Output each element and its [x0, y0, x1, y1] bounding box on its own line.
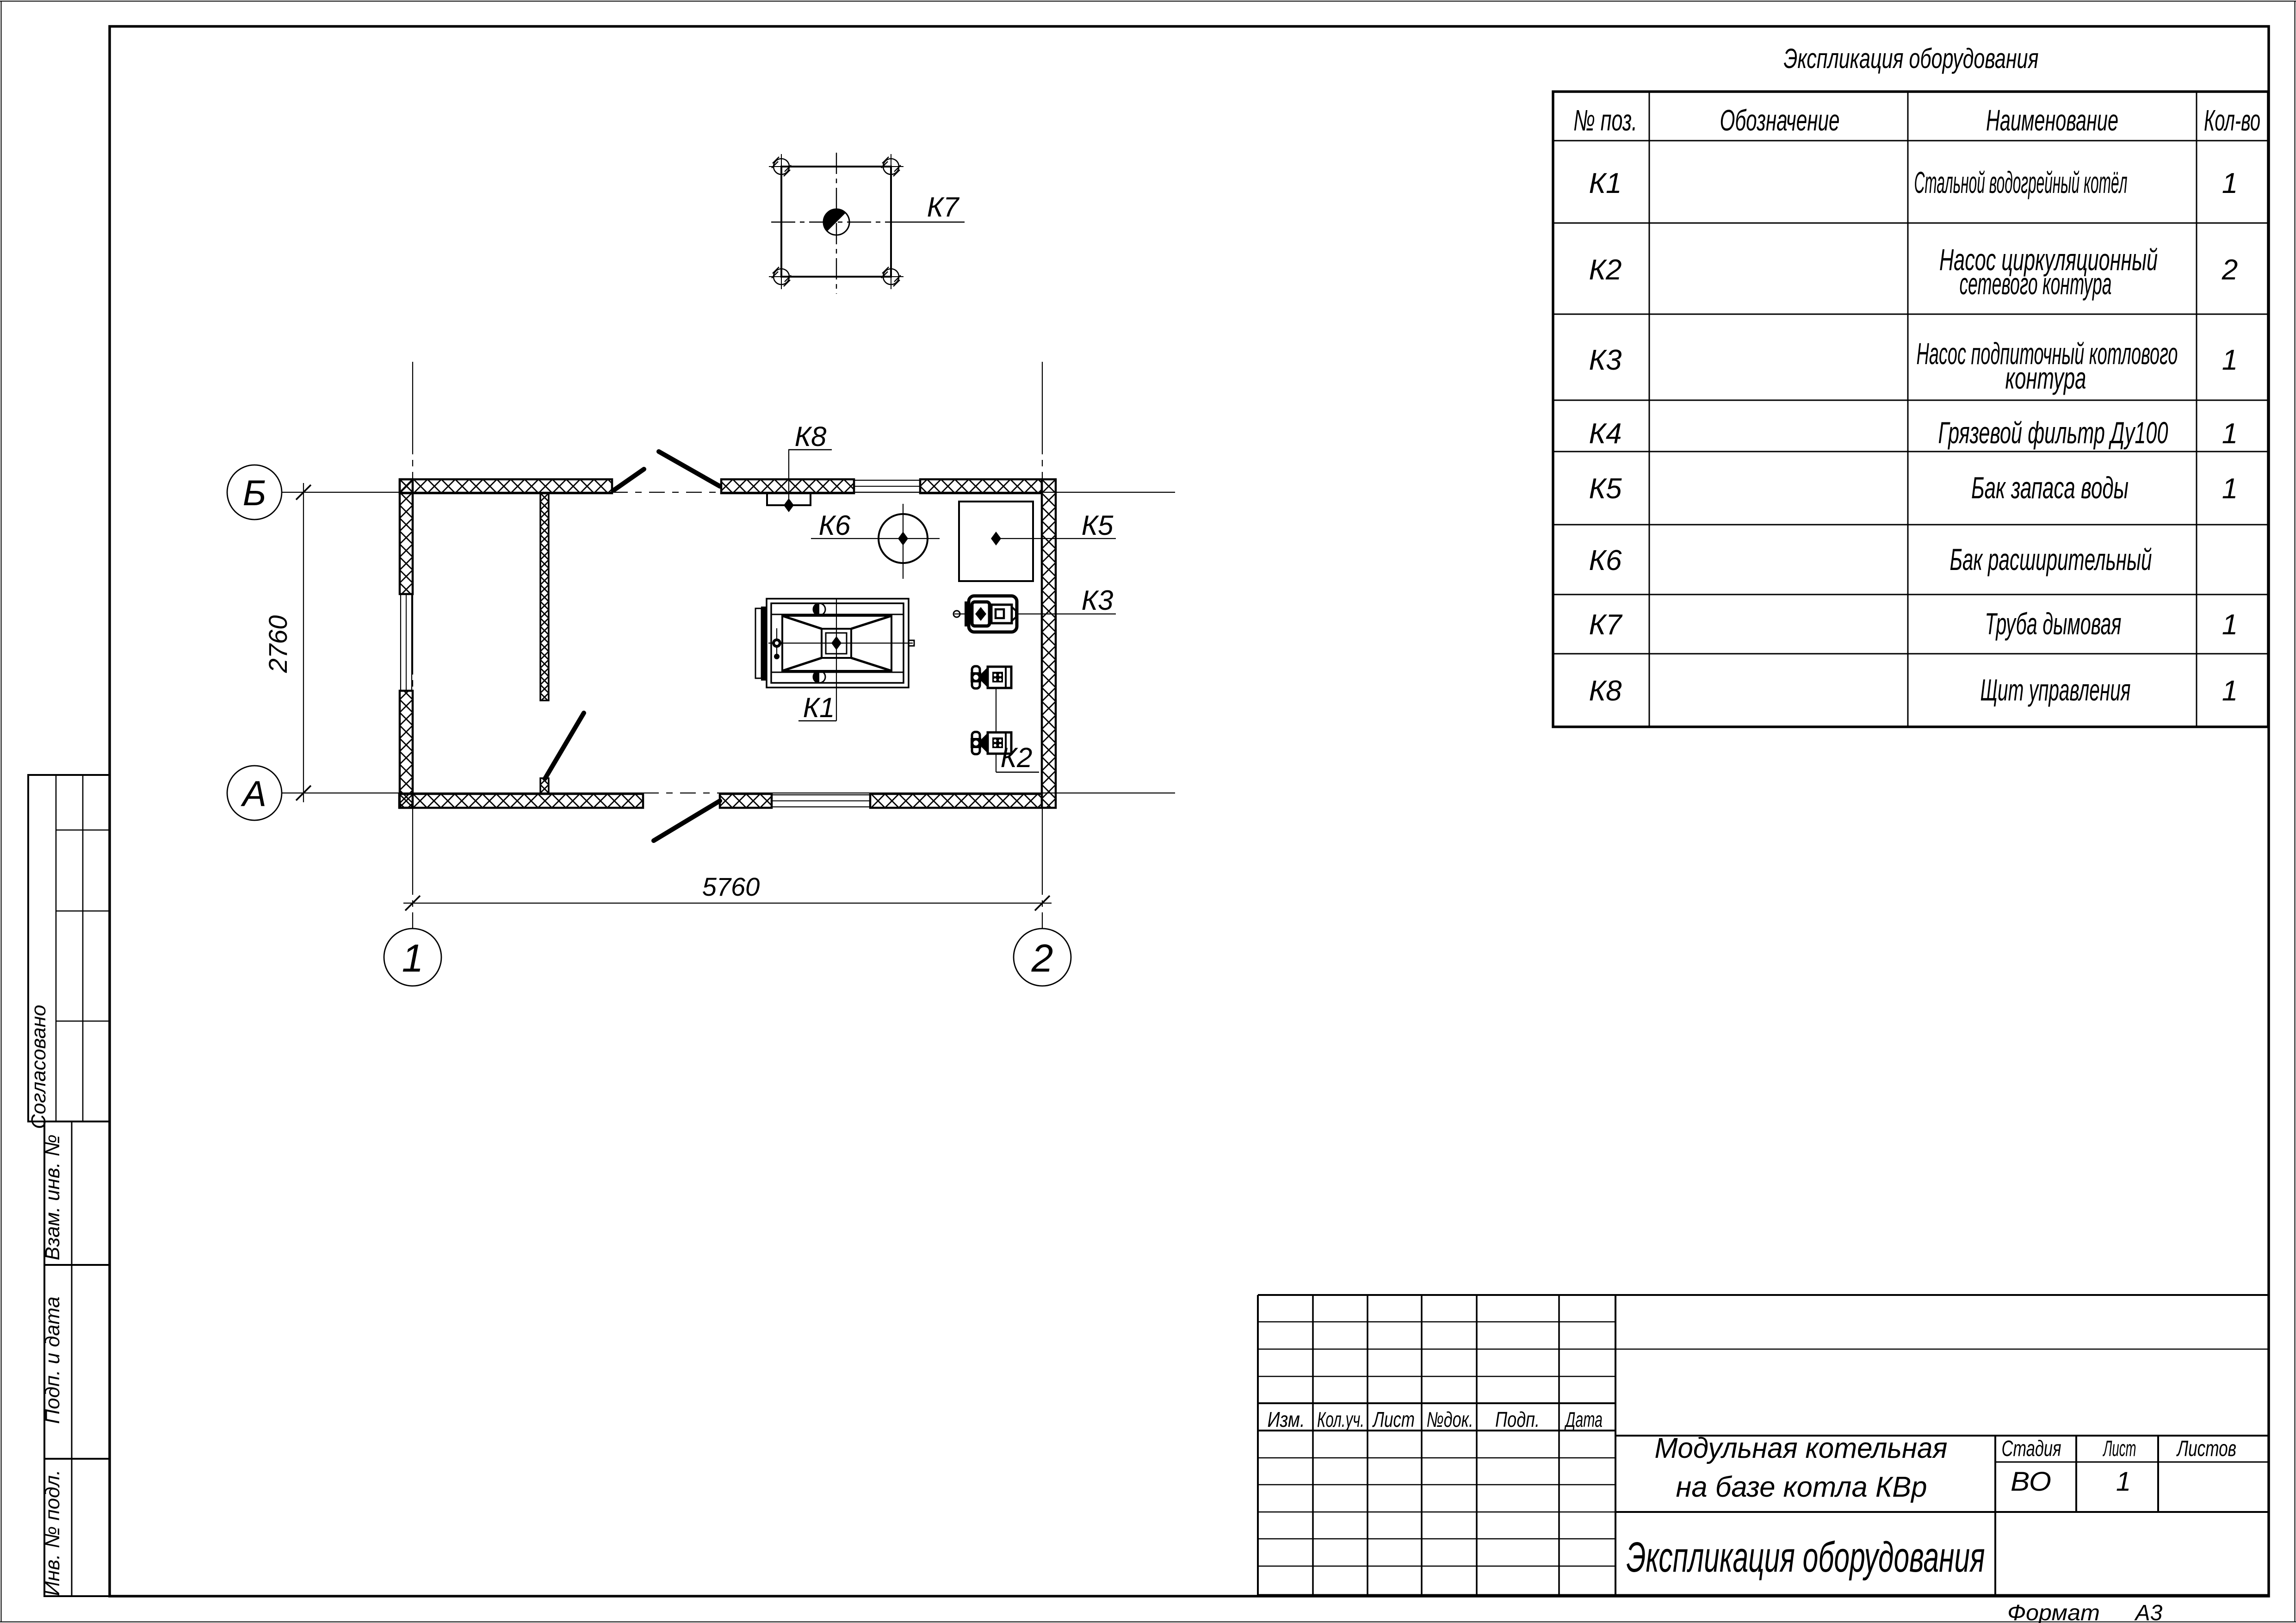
svg-text:Взам. инв. №: Взам. инв. №	[41, 1134, 64, 1260]
svg-text:К2: К2	[1001, 742, 1033, 773]
svg-text:Листов: Листов	[2176, 1437, 2236, 1461]
svg-text:К7: К7	[1589, 609, 1623, 641]
svg-text:1: 1	[402, 936, 424, 980]
svg-text:№док.: №док.	[1427, 1407, 1473, 1431]
svg-text:Экспликация оборудования: Экспликация оборудования	[1627, 1534, 1985, 1581]
svg-text:Изм.: Изм.	[1268, 1407, 1305, 1431]
svg-text:А3: А3	[2134, 1601, 2163, 1623]
svg-text:Экспликация оборудования: Экспликация оборудования	[1784, 43, 2039, 74]
svg-text:1: 1	[2222, 418, 2238, 450]
svg-text:К6: К6	[819, 510, 851, 541]
svg-text:Наименование: Наименование	[1986, 104, 2118, 137]
svg-text:К3: К3	[1589, 344, 1621, 376]
svg-text:К8: К8	[1589, 675, 1622, 707]
svg-text:Подп.: Подп.	[1495, 1407, 1540, 1431]
svg-text:Формат: Формат	[2007, 1601, 2100, 1623]
svg-text:1: 1	[2222, 473, 2238, 505]
svg-text:Бак запаса воды: Бак запаса воды	[1971, 471, 2129, 505]
svg-text:контура: контура	[2005, 361, 2086, 395]
svg-text:Лист: Лист	[2103, 1437, 2136, 1461]
svg-text:2: 2	[2222, 254, 2238, 286]
svg-text:1: 1	[2222, 675, 2238, 707]
svg-text:Щит управления: Щит управления	[1980, 673, 2131, 707]
svg-text:1: 1	[2222, 344, 2238, 376]
svg-text:ВО: ВО	[2011, 1467, 2051, 1497]
svg-text:К8: К8	[795, 421, 827, 452]
svg-text:1: 1	[2116, 1467, 2131, 1497]
svg-text:Дата: Дата	[1564, 1407, 1603, 1431]
svg-text:1: 1	[2222, 167, 2238, 199]
svg-text:Грязевой фильтр Ду100: Грязевой фильтр Ду100	[1938, 415, 2168, 450]
svg-text:Стадия: Стадия	[2002, 1437, 2061, 1461]
svg-text:Б: Б	[243, 472, 266, 513]
svg-text:Кол.уч.: Кол.уч.	[1317, 1407, 1364, 1431]
svg-text:Труба дымовая: Труба дымовая	[1985, 607, 2122, 641]
svg-text:Модульная котельная: Модульная котельная	[1655, 1432, 1948, 1464]
svg-text:А: А	[241, 773, 266, 814]
svg-text:К1: К1	[1589, 167, 1621, 199]
svg-text:К5: К5	[1082, 510, 1114, 541]
svg-text:сетевого контура: сетевого контура	[1960, 266, 2112, 301]
svg-text:Кол-во: Кол-во	[2204, 104, 2260, 137]
svg-text:Согласовано: Согласовано	[27, 1005, 50, 1129]
svg-text:К6: К6	[1589, 545, 1622, 576]
svg-text:Инв. № подл.: Инв. № подл.	[41, 1469, 64, 1596]
svg-text:К3: К3	[1082, 585, 1114, 616]
svg-text:№ поз.: № поз.	[1573, 104, 1637, 137]
svg-text:К5: К5	[1589, 473, 1622, 505]
svg-text:2760: 2760	[263, 615, 292, 674]
svg-text:5760: 5760	[702, 872, 760, 901]
svg-text:Стальной водогрейный котёл: Стальной водогрейный котёл	[1914, 165, 2128, 199]
svg-text:2: 2	[1031, 936, 1053, 980]
svg-text:К7: К7	[927, 192, 960, 223]
svg-text:1: 1	[2222, 609, 2238, 641]
svg-text:Обозначение: Обозначение	[1720, 104, 1840, 137]
svg-text:К4: К4	[1589, 418, 1621, 450]
svg-text:К2: К2	[1589, 254, 1621, 286]
svg-text:Бак расширительный: Бак расширительный	[1950, 542, 2152, 576]
svg-text:Лист: Лист	[1372, 1407, 1415, 1431]
svg-text:Подп. и дата: Подп. и дата	[41, 1296, 64, 1424]
svg-text:К1: К1	[803, 692, 835, 723]
svg-text:на базе котла КВр: на базе котла КВр	[1676, 1471, 1927, 1503]
